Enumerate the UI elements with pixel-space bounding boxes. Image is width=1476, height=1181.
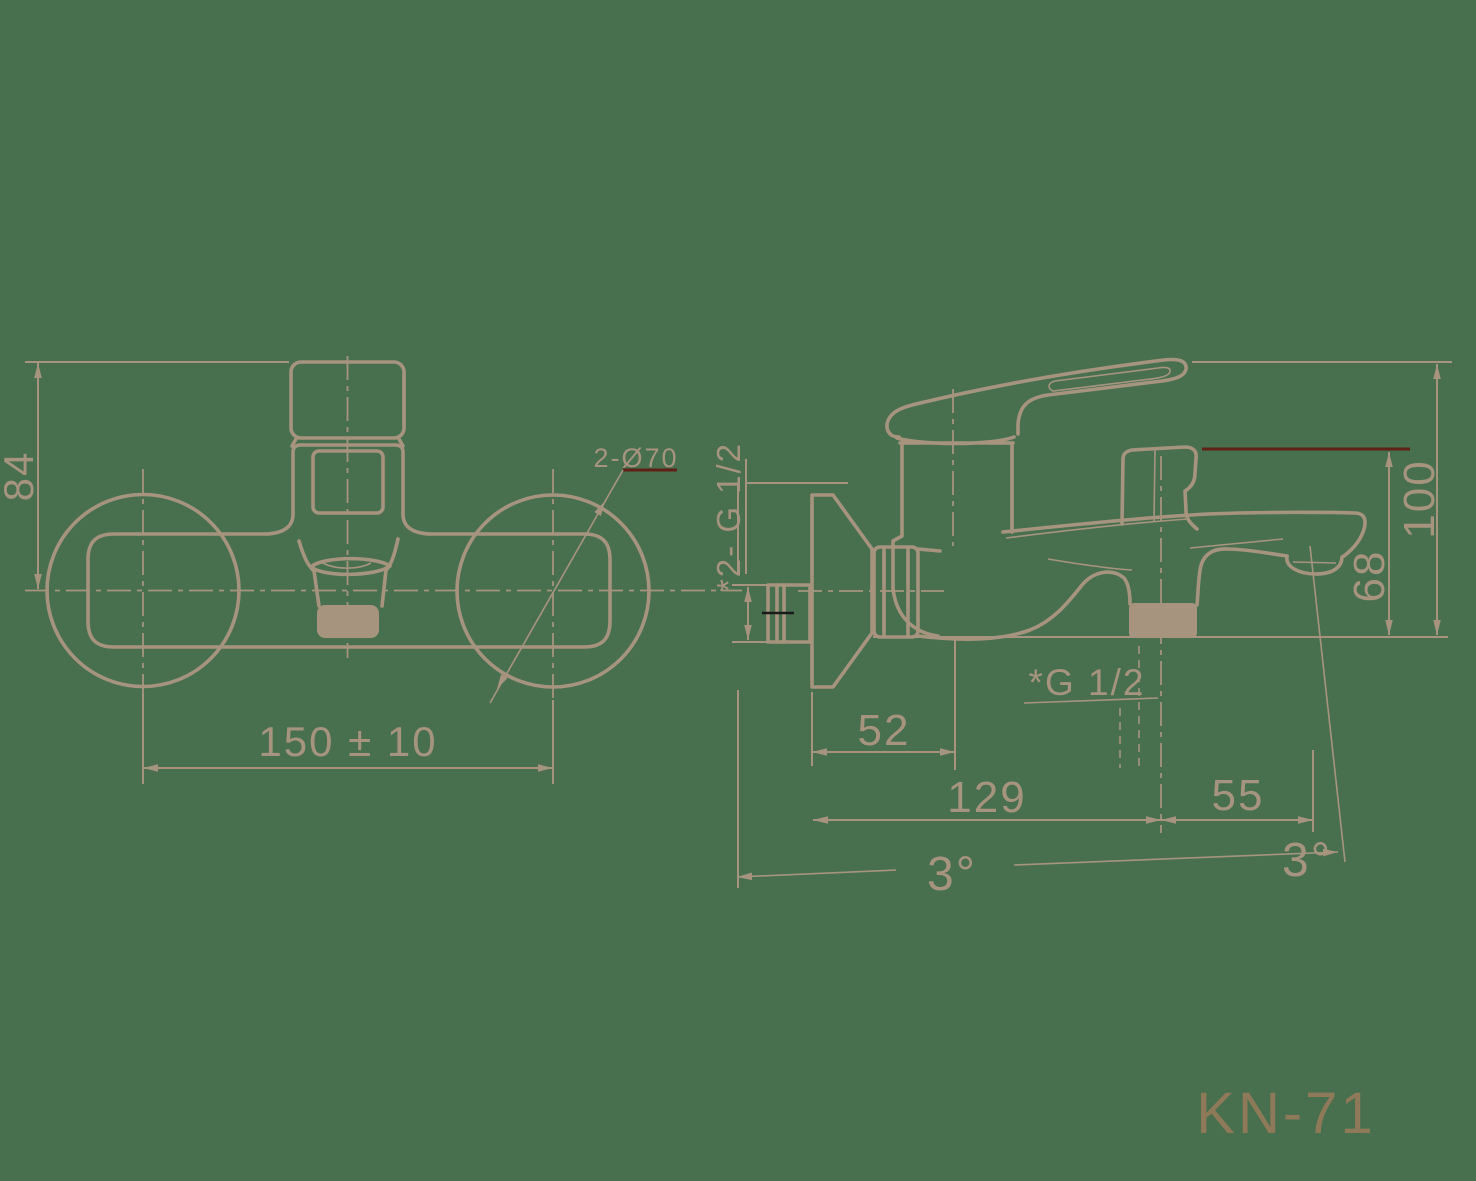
dim-angle-right-label: 3° — [1282, 834, 1332, 887]
technical-drawing-canvas: 84 150 ± 10 2-Ø70 — [0, 0, 1476, 1181]
side-view: *2- G 1/2 52 129 55 *G 1/2 100 68 3° 3° — [710, 359, 1452, 901]
body-foot-curve — [893, 588, 938, 636]
dim-angle-line-left — [737, 870, 896, 877]
handle-cap — [897, 437, 1014, 444]
spout-outlet-tilted-axis — [1310, 546, 1345, 862]
faucet-dimension-drawing: 84 150 ± 10 2-Ø70 — [0, 0, 1476, 1181]
spout-aerator-cup — [1287, 556, 1344, 574]
dim-shower-thread-label: *G 1/2 — [1029, 662, 1146, 703]
lever-handle — [887, 359, 1186, 437]
under-body-arch — [918, 572, 1130, 639]
hex-nut-facets — [884, 547, 908, 637]
body-left-edge — [893, 444, 902, 588]
spout-mouth-lens — [311, 559, 390, 575]
dim-150-label: 150 ± 10 — [258, 718, 437, 765]
under-body-inner-edge — [1048, 559, 1132, 570]
dim-100-label: 100 — [1395, 459, 1444, 538]
dim-inlet-thread-label: *2- G 1/2 — [710, 442, 747, 592]
spout-aerator-inner-line — [1293, 562, 1336, 563]
dim-84-label: 84 — [0, 451, 42, 502]
dim-68-label: 68 — [1345, 550, 1394, 603]
front-threaded-outlet — [318, 606, 378, 637]
front-view: 84 150 ± 10 2-Ø70 — [0, 356, 742, 784]
dim-52-label: 52 — [858, 706, 911, 755]
diverter-knob-facet — [1154, 450, 1155, 521]
spout-underside — [1197, 549, 1287, 605]
body-inlet-link — [918, 549, 940, 551]
spout-underside-detail — [1190, 539, 1283, 548]
model-number-label: KN-71 — [1196, 1081, 1375, 1146]
dim-angle-left-label: 3° — [927, 848, 977, 901]
dim-flange-label: 2-Ø70 — [593, 443, 678, 473]
shower-threaded-outlet — [1130, 604, 1196, 637]
dim-129-label: 129 — [947, 773, 1026, 822]
spout-mouth-inner-arc — [321, 562, 371, 568]
dim-55-label: 55 — [1212, 771, 1265, 820]
